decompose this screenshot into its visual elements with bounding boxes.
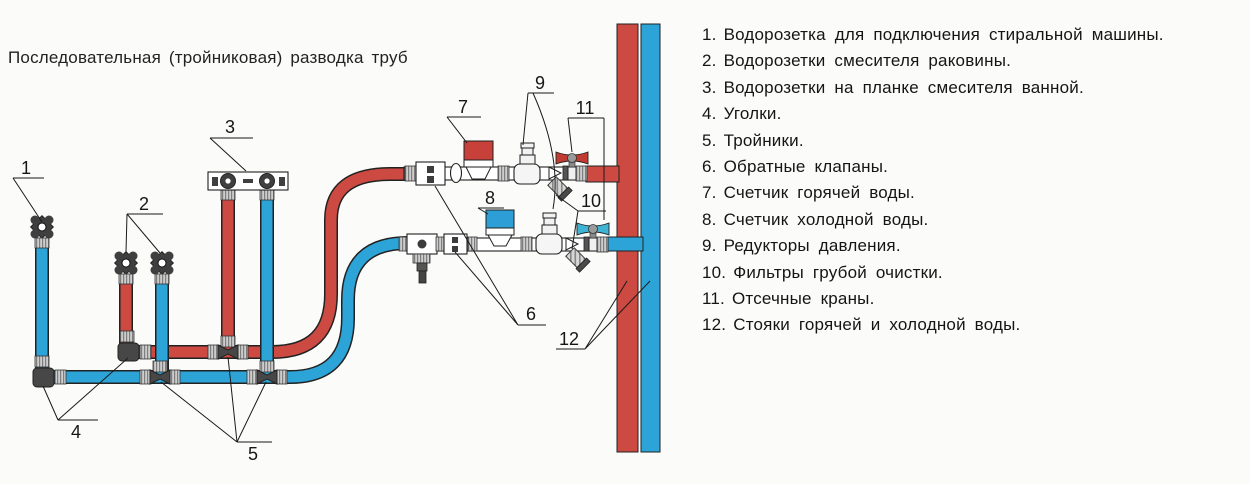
hot-riser-stub: [586, 166, 619, 182]
cold-riser-stub: [608, 237, 643, 251]
callout-6: 6: [526, 304, 536, 324]
legend-num: 2.: [702, 48, 717, 74]
legend-text: Отсечные краны.: [732, 289, 875, 308]
legend-text: Водорозетка для подключения стиральной м…: [724, 25, 1164, 44]
callout-1: 1: [21, 158, 31, 178]
legend-num: 11.: [702, 286, 725, 312]
callout-5: 5: [248, 444, 258, 464]
callout-3: 3: [225, 117, 235, 137]
legend-item-3: 3.Водорозетки на планке смесителя ванной…: [702, 75, 1247, 101]
callout-numbers: 1 2 3 4 5 6 7 8 9 10 11 12: [21, 73, 601, 464]
hot-coupling-1: [405, 166, 416, 181]
legend-text: Редукторы давления.: [724, 236, 901, 255]
legend-text: Уголки.: [724, 104, 782, 123]
callout-4: 4: [71, 422, 81, 442]
legend-num: 3.: [702, 75, 717, 101]
callout-9: 9: [535, 73, 545, 93]
legend-item-6: 6.Обратные клапаны.: [702, 154, 1247, 180]
legend-item-4: 4.Уголки.: [702, 101, 1247, 127]
legend-item-12: 12.Стояки горячей и холодной воды.: [702, 312, 1247, 338]
sink-outlet-cold: [151, 252, 174, 285]
legend-item-8: 8.Счетчик холодной воды.: [702, 207, 1247, 233]
legend-text: Счетчик холодной воды.: [724, 210, 929, 229]
callout-12: 12: [559, 329, 579, 349]
legend-num: 7.: [702, 180, 717, 206]
cold-coupling-3: [521, 237, 532, 251]
cold-pressure-reducer: [536, 213, 562, 254]
legend-text: Фильтры грубой очистки.: [733, 263, 943, 282]
legend-item-7: 7.Счетчик горячей воды.: [702, 180, 1247, 206]
pipe-diagram: 1 2 3 4 5 6 7 8 9 10 11 12: [0, 0, 700, 484]
cold-check-valve: [444, 234, 467, 254]
legend-text: Счетчик горячей воды.: [724, 183, 915, 202]
legend-num: 1.: [702, 22, 717, 48]
legend-num: 4.: [702, 101, 717, 127]
legend-text: Стояки горячей и холодной воды.: [733, 315, 1020, 334]
legend-text: Тройники.: [724, 131, 804, 150]
sink-outlet-hot: [115, 252, 138, 285]
legend-text: Водорозетки смесителя раковины.: [724, 51, 1011, 70]
legend: 1.Водорозетка для подключения стиральной…: [702, 22, 1247, 339]
legend-text: Обратные клапаны.: [724, 157, 888, 176]
legend-text: Водорозетки на планке смесителя ванной.: [724, 78, 1084, 97]
legend-item-9: 9.Редукторы давления.: [702, 233, 1247, 259]
washing-machine-outlet: [31, 216, 54, 249]
legend-num: 12.: [702, 312, 726, 338]
callout-8: 8: [485, 188, 495, 208]
legend-item-1: 1.Водорозетка для подключения стиральной…: [702, 22, 1247, 48]
cold-water-riser: [641, 24, 660, 452]
legend-num: 9.: [702, 233, 717, 259]
hot-coupling-2: [498, 166, 509, 181]
legend-num: 10.: [702, 260, 726, 286]
legend-item-10: 10.Фильтры грубой очистки.: [702, 260, 1247, 286]
callout-7: 7: [458, 97, 468, 117]
hot-check-valve: [416, 162, 445, 185]
hot-union-nut: [451, 164, 462, 183]
plumbing-diagram-page: { "title": "Последовательная (тройникова…: [0, 0, 1250, 484]
legend-num: 8.: [702, 207, 717, 233]
hot-elbow-fitting: [118, 331, 151, 361]
bath-mixer-bracket: [208, 172, 288, 200]
legend-item-2: 2.Водорозетки смесителя раковины.: [702, 48, 1247, 74]
legend-item-11: 11.Отсечные краны.: [702, 286, 1247, 312]
callout-2: 2: [139, 194, 149, 214]
hot-pressure-reducer: [514, 143, 540, 184]
cold-drain-tee: [399, 234, 437, 283]
legend-num: 5.: [702, 128, 717, 154]
callout-10: 10: [581, 191, 601, 211]
callout-11: 11: [576, 98, 595, 118]
legend-item-5: 5.Тройники.: [702, 128, 1247, 154]
cold-elbow-fitting: [33, 356, 66, 387]
legend-num: 6.: [702, 154, 717, 180]
